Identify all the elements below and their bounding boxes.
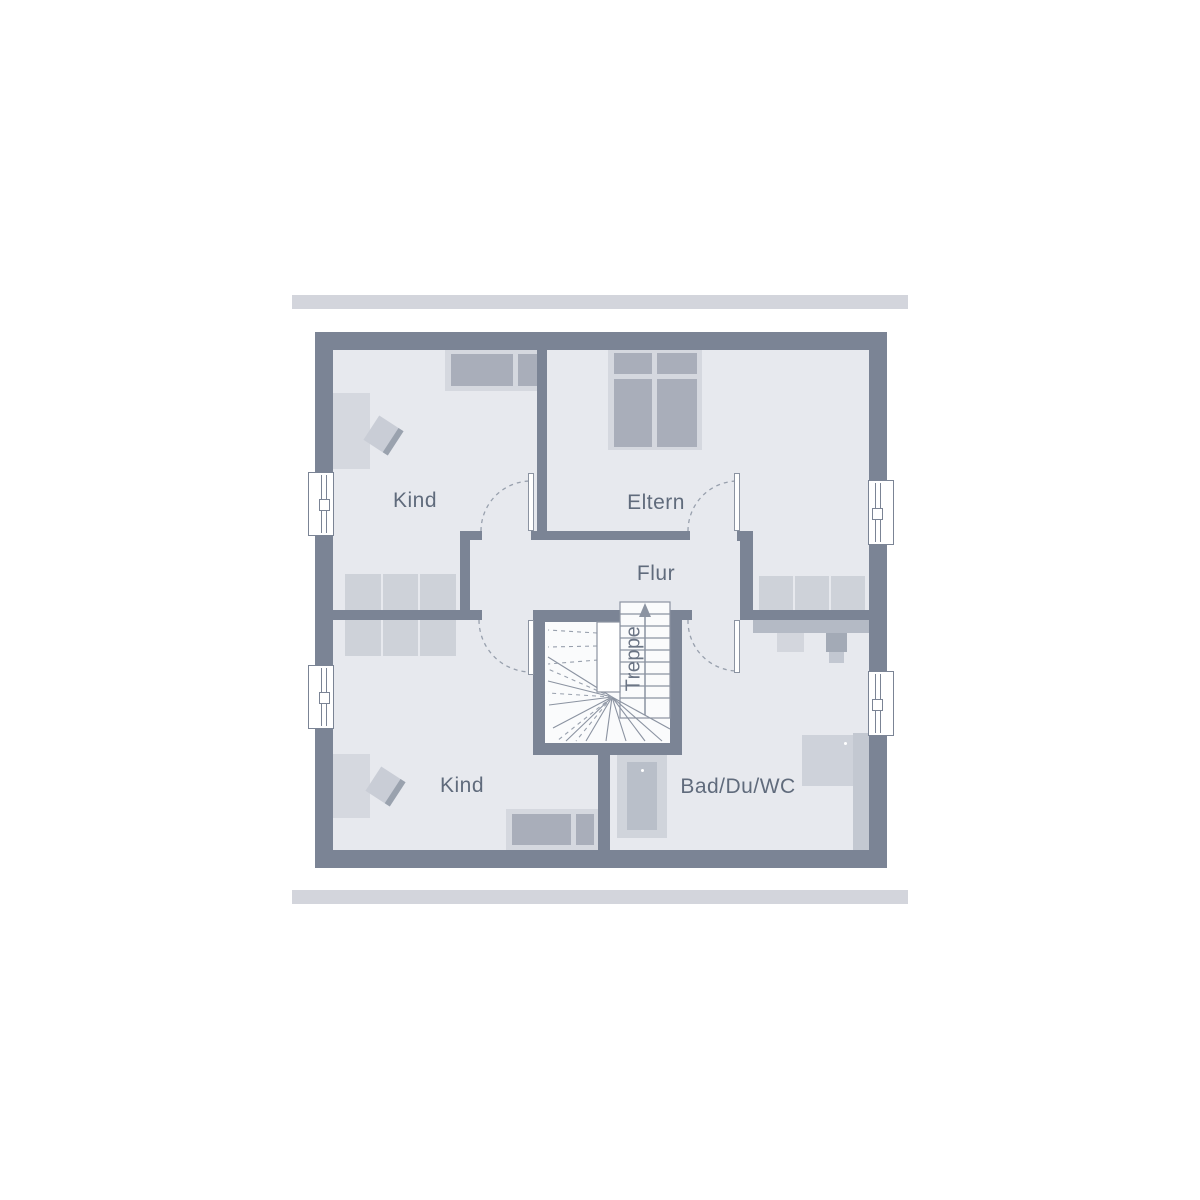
door-leaf-bad — [734, 620, 740, 673]
top-rule — [292, 295, 908, 309]
wall-treppe-top — [533, 610, 620, 622]
toilet-seat — [829, 652, 844, 663]
wall-flur-top — [531, 531, 690, 540]
wall-outer-left — [315, 350, 333, 850]
drain-dot — [641, 769, 644, 772]
wall-outer-top — [315, 332, 887, 350]
washbasin — [777, 633, 804, 652]
window-handle — [319, 499, 330, 511]
wall-outer-right — [869, 350, 887, 850]
radiator-strip — [853, 733, 869, 850]
bed-mattress — [614, 379, 652, 447]
wardrobe-cell — [759, 576, 793, 611]
door-leaf-kind-top — [528, 473, 534, 531]
desk — [333, 754, 370, 818]
wall-flur-top-stub — [460, 531, 482, 540]
closet-cell — [383, 620, 419, 656]
wall-kind-bottom-top — [333, 610, 482, 620]
wall-outer-bottom — [315, 850, 887, 868]
wardrobe — [759, 576, 865, 611]
wall-treppe-right — [670, 610, 682, 755]
window-right-top — [868, 480, 894, 545]
window-left-bottom — [308, 665, 334, 729]
room-label-treppe: Treppe — [623, 625, 646, 693]
wall-kind-eltern — [537, 350, 547, 531]
closet-row-top — [345, 574, 456, 610]
closet-cell — [420, 574, 456, 610]
floorplan-page: Kind Eltern Flur Kind Bad/Du/WC Treppe — [0, 0, 1200, 1200]
closet-cell — [420, 620, 456, 656]
room-label-kind-top: Kind — [355, 489, 475, 513]
bed-pillow — [518, 354, 537, 386]
wardrobe-cell — [831, 576, 865, 611]
bed-pillow — [576, 814, 594, 845]
wall-flur-right-corner — [737, 531, 753, 541]
wall-stub-treppe-right — [682, 610, 692, 620]
closet-cell — [383, 574, 419, 610]
door-leaf-kind-bottom — [528, 620, 534, 675]
window-right-bottom — [868, 671, 894, 736]
wardrobe-cell — [795, 576, 829, 611]
wall-treppe-left — [533, 610, 545, 755]
window-handle — [872, 699, 883, 711]
bed-mattress — [451, 354, 513, 386]
desk — [333, 393, 370, 469]
closet-row-bottom — [345, 620, 456, 656]
vanity-counter — [753, 620, 869, 633]
room-label-bad: Bad/Du/WC — [658, 775, 818, 799]
wall-flur-right — [740, 541, 753, 620]
room-label-kind-bottom: Kind — [402, 774, 522, 798]
closet-cell — [345, 574, 381, 610]
bed-pillow — [614, 353, 652, 374]
bottom-rule — [292, 890, 908, 904]
closet-cell — [345, 620, 381, 656]
bed-mattress — [512, 814, 571, 845]
drain-dot — [844, 742, 847, 745]
window-left-top — [308, 472, 334, 536]
stairwell-floor — [545, 622, 670, 743]
bathtub-inner — [627, 762, 657, 830]
room-label-flur: Flur — [596, 562, 716, 586]
wall-bad-top — [740, 610, 869, 620]
window-handle — [319, 692, 330, 704]
wall-flur-left — [460, 540, 470, 610]
bed-mattress — [657, 379, 697, 447]
bed-pillow — [657, 353, 697, 374]
wall-kind-bad — [598, 755, 610, 850]
toilet — [826, 633, 847, 652]
room-label-eltern: Eltern — [596, 491, 716, 515]
wall-treppe-bottom — [533, 743, 682, 755]
window-handle — [872, 508, 883, 520]
door-leaf-eltern — [734, 473, 740, 531]
